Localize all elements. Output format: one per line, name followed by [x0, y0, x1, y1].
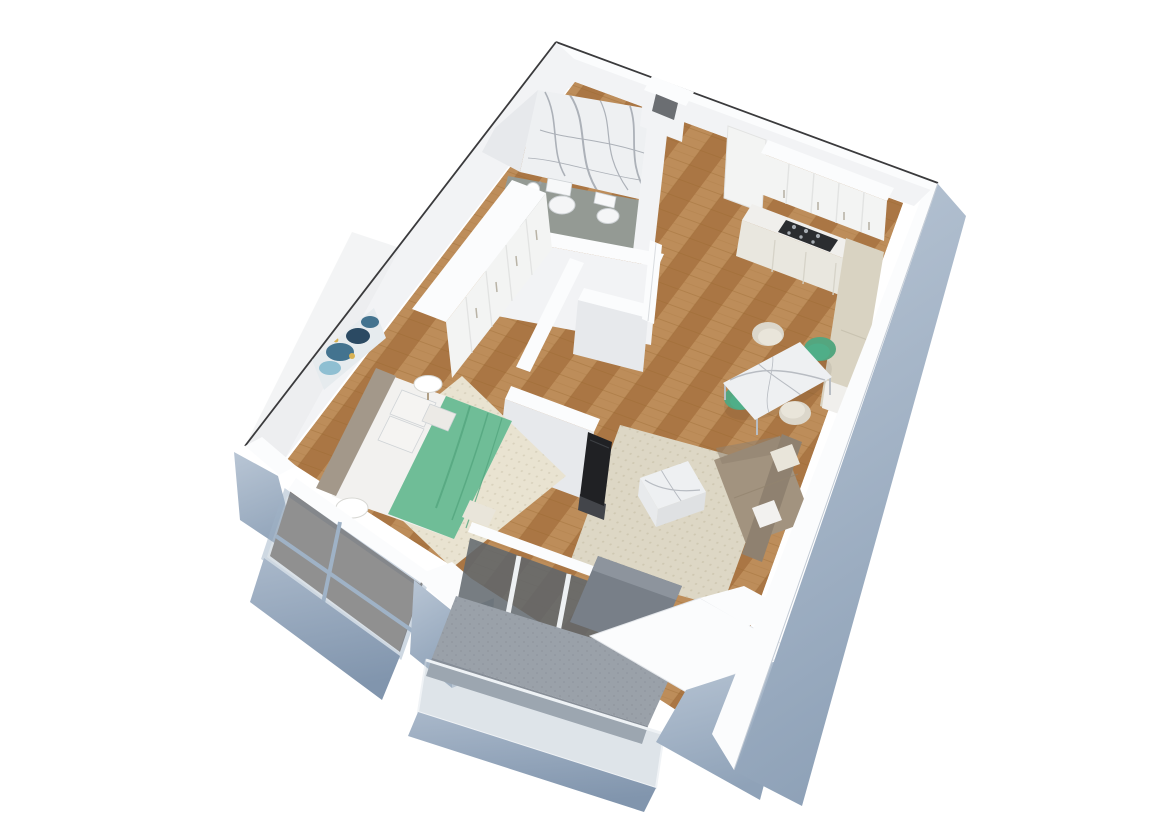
floor-plan-render [0, 0, 1170, 827]
dining-chair-cream-top [752, 322, 784, 346]
kitchen-tall-cabinet [724, 126, 766, 212]
floor-plan-canvas [0, 0, 1170, 827]
dining-chair-cream-bottom [779, 401, 811, 425]
